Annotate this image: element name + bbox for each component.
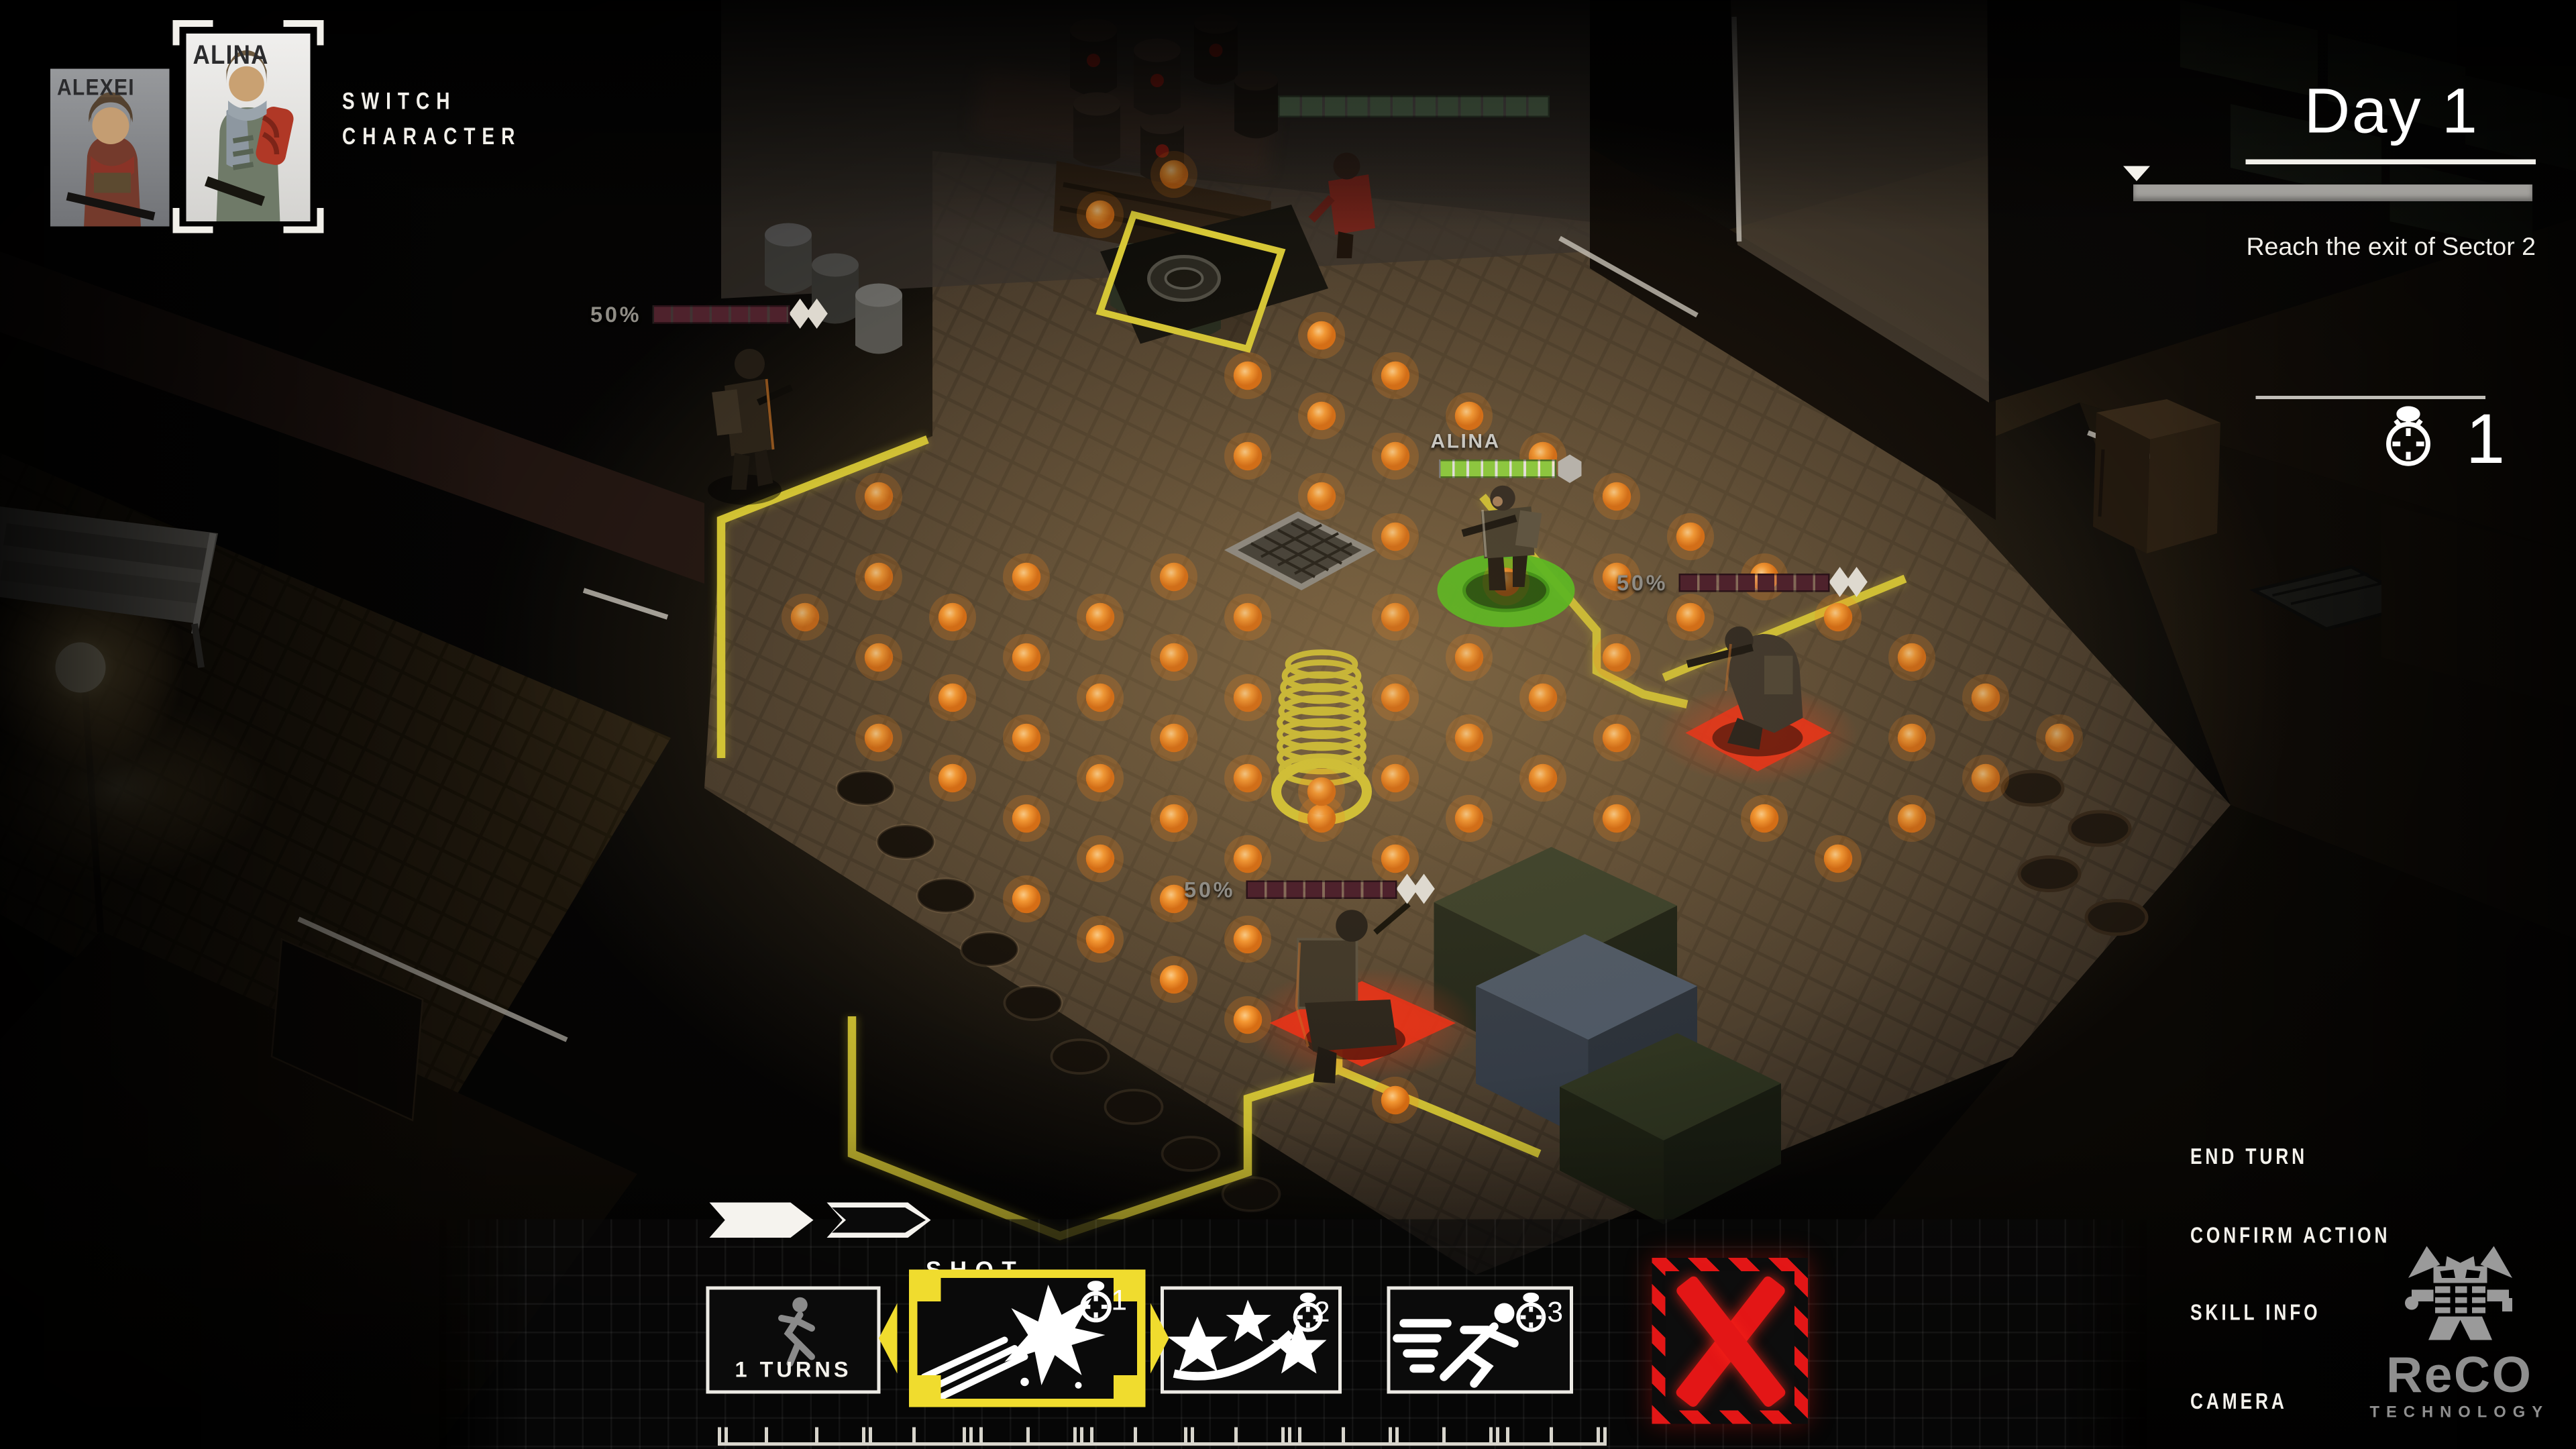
move-dot[interactable] [1077,835,1124,882]
enemy-health-bar-top-left: 50% [590,299,828,329]
move-dot[interactable] [1667,513,1714,560]
move-dot[interactable] [1224,594,1271,641]
skill-move-button[interactable]: 1 TURNS [706,1287,881,1394]
studio-name: ReCO [2355,1352,2565,1402]
move-dot[interactable] [1372,352,1419,399]
move-dot[interactable] [1593,634,1640,681]
move-dot[interactable] [1224,674,1271,721]
move-dot[interactable] [1446,714,1493,761]
hit-chance-label: 50% [1184,876,1235,902]
move-dot[interactable] [1224,916,1271,963]
skill-triple-star-button[interactable]: 2 [1161,1287,1342,1394]
portrait-alexei[interactable]: ALEXEI [50,69,170,227]
mission-objective: Reach the exit of Sector 2 [2100,233,2536,262]
move-dot[interactable] [929,594,976,641]
progress-marker-icon [2123,166,2150,182]
skill-sprint-button[interactable]: 3 [1387,1287,1574,1394]
move-dot[interactable] [782,594,828,641]
move-dot[interactable] [1150,795,1197,842]
move-dot[interactable] [1962,674,2009,721]
move-dot[interactable] [1003,714,1050,761]
game-screen: ALINA 50% 50% 50% ALEXEI [0,0,2576,1449]
alina-health-bar [1439,455,1582,484]
move-dot[interactable] [1667,594,1714,641]
move-dot[interactable] [1077,674,1124,721]
move-dot[interactable] [855,473,902,520]
move-dot[interactable] [1077,916,1124,963]
skill-cost: 1 [1111,1285,1127,1318]
move-dot[interactable] [1077,755,1124,802]
move-dot[interactable] [1372,594,1419,641]
move-dot[interactable] [1003,795,1050,842]
move-dot[interactable] [1224,996,1271,1043]
timer-rule [2256,396,2486,399]
move-dot[interactable] [1593,795,1640,842]
move-dot[interactable] [855,553,902,600]
mission-progress-bar [2133,184,2532,201]
ally-health-bar-top [1278,96,1550,118]
move-dot[interactable] [1519,674,1566,721]
day-title-rule [2246,160,2536,165]
move-dot[interactable] [1224,352,1271,399]
move-dot[interactable] [1593,473,1640,520]
sprint-icon [1391,1290,1570,1391]
move-dot[interactable] [855,634,902,681]
portrait-name: ALINA [193,39,269,70]
day-title: Day 1 [2247,77,2536,150]
move-dot[interactable] [929,755,976,802]
move-dot[interactable] [1298,768,1345,815]
move-dot[interactable] [1888,634,1935,681]
move-dot[interactable] [929,674,976,721]
move-dot[interactable] [1077,191,1124,238]
move-dot[interactable] [1372,513,1419,560]
reco-robot-icon [2401,1241,2518,1345]
skill-nav-right-icon [1150,1303,1169,1374]
move-dot[interactable] [2036,714,2083,761]
health-bar-cap [1558,455,1582,484]
move-dot[interactable] [1519,755,1566,802]
triple-star-icon [1164,1290,1338,1391]
wooden-crate [2093,399,2220,553]
move-dot[interactable] [1815,594,1862,641]
move-turns-label: 1 TURNS [710,1357,877,1383]
switch-character-button[interactable]: SWITCH CHARACTER [342,84,521,154]
move-dot[interactable] [1446,795,1493,842]
move-dot[interactable] [1815,835,1862,882]
move-dot[interactable] [1077,594,1124,641]
move-dot[interactable] [1003,634,1050,681]
move-dot[interactable] [1298,392,1345,439]
skill-nav-left-icon [879,1303,898,1374]
move-dot[interactable] [1372,755,1419,802]
move-dot[interactable] [1962,755,2009,802]
menu-camera[interactable]: CAMERA [2190,1389,2288,1414]
stopwatch-icon [2381,405,2435,468]
hazard-x-icon [1666,1271,1795,1411]
timer-value: 1 [2452,399,2519,480]
move-dot[interactable] [1593,714,1640,761]
hit-chance-label: 50% [590,301,641,327]
portrait-alina[interactable]: ALINA [186,34,311,221]
move-dot[interactable] [1372,433,1419,480]
move-dot[interactable] [1150,553,1197,600]
move-dot[interactable] [1446,634,1493,681]
muzzle-flash-icon [918,1278,1138,1399]
move-dot[interactable] [1003,875,1050,922]
menu-end-turn[interactable]: END TURN [2190,1144,2308,1169]
studio-logo: ReCO TECHNOLOGY [2355,1241,2565,1422]
move-dot[interactable] [1741,795,1788,842]
studio-subtitle: TECHNOLOGY [2355,1404,2565,1423]
move-dot[interactable] [1150,714,1197,761]
move-dot[interactable] [1150,634,1197,681]
menu-skill-info[interactable]: SKILL INFO [2190,1300,2321,1326]
move-dot[interactable] [1298,312,1345,359]
timeline-ruler [718,1428,1607,1446]
hit-chance-label: 50% [1617,570,1668,595]
enemy-health-bar-bottom: 50% [1184,874,1435,904]
move-dot[interactable] [1150,956,1197,1003]
skill-shot-button[interactable]: 1 [909,1270,1146,1407]
alina-name-label: ALINA [1431,429,1501,453]
portrait-name: ALEXEI [57,74,135,101]
skill-cost: 3 [1547,1297,1563,1330]
move-dot[interactable] [1888,714,1935,761]
skill-cost: 2 [1314,1297,1330,1330]
move-dot[interactable] [1150,151,1197,198]
move-dot[interactable] [1224,755,1271,802]
move-dot[interactable] [1888,795,1935,842]
move-dot[interactable] [1003,553,1050,600]
cancel-action-button[interactable] [1652,1258,1809,1424]
move-dot[interactable] [1372,674,1419,721]
enemy-health-bar-right: 50% [1617,567,1868,597]
move-dot[interactable] [1372,1077,1419,1124]
move-dot[interactable] [1298,473,1345,520]
move-dot[interactable] [855,714,902,761]
move-dot[interactable] [1224,433,1271,480]
